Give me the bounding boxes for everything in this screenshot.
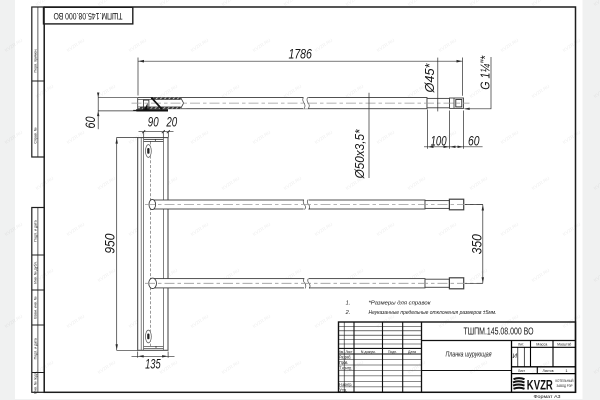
svg-text:Подп. и дата: Подп. и дата	[34, 338, 38, 359]
svg-text:Лист: Лист	[346, 349, 353, 354]
svg-text:Лист: Лист	[518, 368, 525, 373]
svg-text:Утв.: Утв.	[339, 387, 347, 392]
svg-text:1.: 1.	[346, 300, 351, 306]
svg-text:950: 950	[102, 233, 118, 253]
svg-text:Листов: Листов	[543, 368, 554, 373]
svg-text:G 1¼"*: G 1¼"*	[478, 55, 493, 90]
svg-text:Т.контр.: Т.контр.	[339, 366, 352, 371]
svg-text:Дата: Дата	[408, 349, 417, 354]
svg-text:Ø50х3,5*: Ø50х3,5*	[352, 129, 367, 180]
svg-text:350: 350	[468, 234, 484, 254]
svg-text:ТШПМ.145.08.000 ВО: ТШПМ.145.08.000 ВО	[464, 327, 534, 338]
svg-text:Разраб.: Разраб.	[339, 355, 351, 360]
svg-text:Неуказанные предельные отклоне: Неуказанные предельные отклонения размер…	[369, 310, 497, 316]
svg-text:Ø45*: Ø45*	[422, 63, 437, 94]
svg-text:Подп.: Подп.	[388, 349, 397, 354]
svg-text:1786: 1786	[288, 45, 312, 61]
svg-text:KVZR: KVZR	[527, 377, 553, 392]
svg-text:Лит.: Лит.	[518, 342, 524, 347]
svg-text:60: 60	[82, 116, 98, 128]
svg-text:Взам. инв. №: Взам. инв. №	[34, 296, 38, 318]
svg-text:Планка шурующая: Планка шурующая	[446, 352, 492, 359]
svg-text:Пров.: Пров.	[339, 360, 348, 365]
svg-text:Перв. примен.: Перв. примен.	[34, 49, 38, 73]
svg-text:N докум.: N докум.	[361, 349, 376, 354]
svg-text:Справ. №: Справ. №	[33, 127, 37, 143]
svg-text:Инв. № подл.: Инв. № подл.	[34, 371, 38, 393]
svg-text:ТШПМ.145.08.000 ВО: ТШПМ.145.08.000 ВО	[54, 11, 123, 21]
svg-text:ЗАВОД РЭР: ЗАВОД РЭР	[557, 384, 574, 388]
svg-text:Инв. № дубл.: Инв. № дубл.	[34, 261, 38, 283]
svg-text:90: 90	[148, 114, 159, 130]
svg-text:КОТЕЛЬНЫЙ: КОТЕЛЬНЫЙ	[556, 379, 575, 383]
svg-text:И: И	[512, 353, 517, 360]
svg-text:Масштаб: Масштаб	[557, 342, 572, 347]
svg-text:100: 100	[431, 132, 447, 148]
svg-text:2.: 2.	[345, 310, 351, 316]
svg-text:20: 20	[166, 114, 178, 130]
svg-text:Формат А3: Формат А3	[534, 394, 561, 400]
svg-text:Н.контр.: Н.контр.	[339, 382, 352, 387]
svg-text:*Размеры для справок: *Размеры для справок	[369, 300, 431, 306]
svg-text:135: 135	[145, 355, 161, 371]
svg-text:Изм.: Изм.	[339, 349, 344, 354]
svg-text:Подп. и дата: Подп. и дата	[33, 220, 37, 241]
svg-text:60: 60	[468, 132, 480, 148]
svg-text:Масса: Масса	[536, 342, 548, 347]
